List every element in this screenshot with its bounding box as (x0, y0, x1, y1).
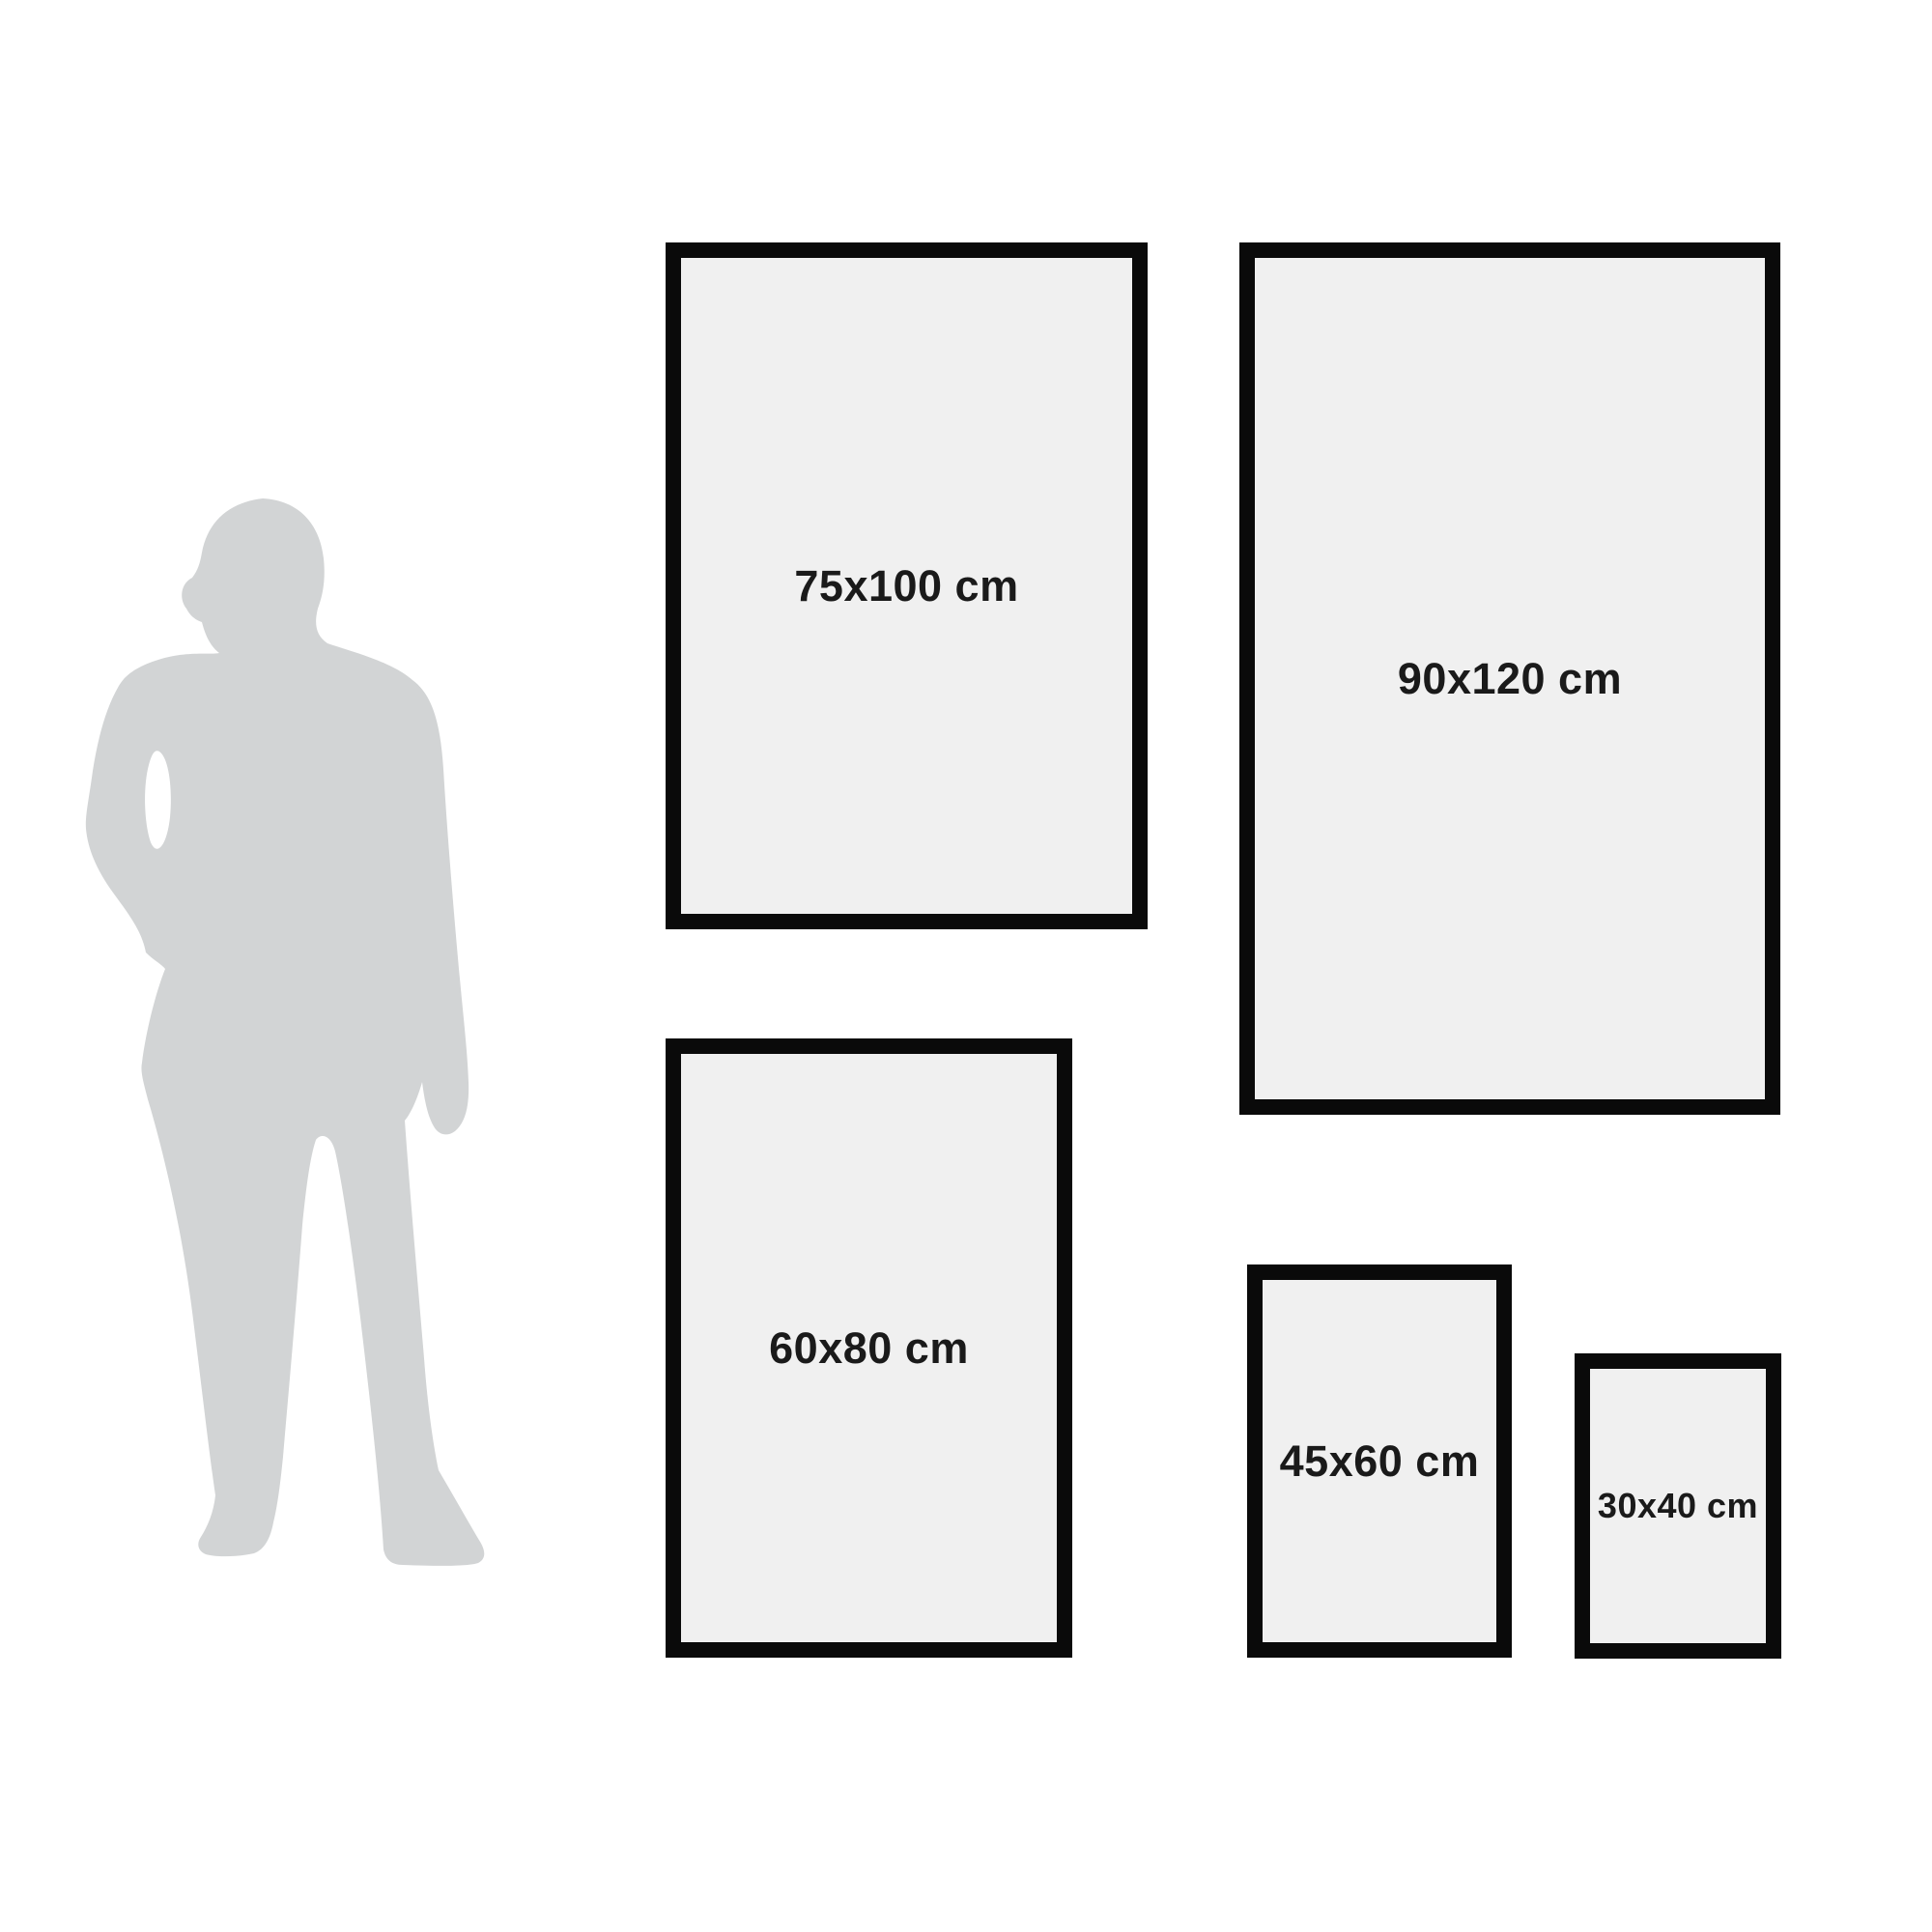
frame-90x120: 90x120 cm (1239, 242, 1780, 1115)
frame-60x80: 60x80 cm (666, 1038, 1072, 1658)
frame-90x120-label: 90x120 cm (1398, 654, 1622, 704)
frame-45x60: 45x60 cm (1247, 1264, 1512, 1658)
frame-75x100: 75x100 cm (666, 242, 1148, 929)
frame-75x100-label: 75x100 cm (794, 561, 1018, 611)
frame-60x80-label: 60x80 cm (769, 1323, 969, 1374)
frame-30x40-label: 30x40 cm (1598, 1486, 1758, 1526)
size-comparison-diagram: 75x100 cm 90x120 cm 60x80 cm 45x60 cm 30… (0, 0, 1932, 1932)
frame-45x60-label: 45x60 cm (1280, 1436, 1480, 1487)
frame-30x40: 30x40 cm (1575, 1353, 1781, 1659)
person-silhouette-icon (84, 491, 490, 1568)
